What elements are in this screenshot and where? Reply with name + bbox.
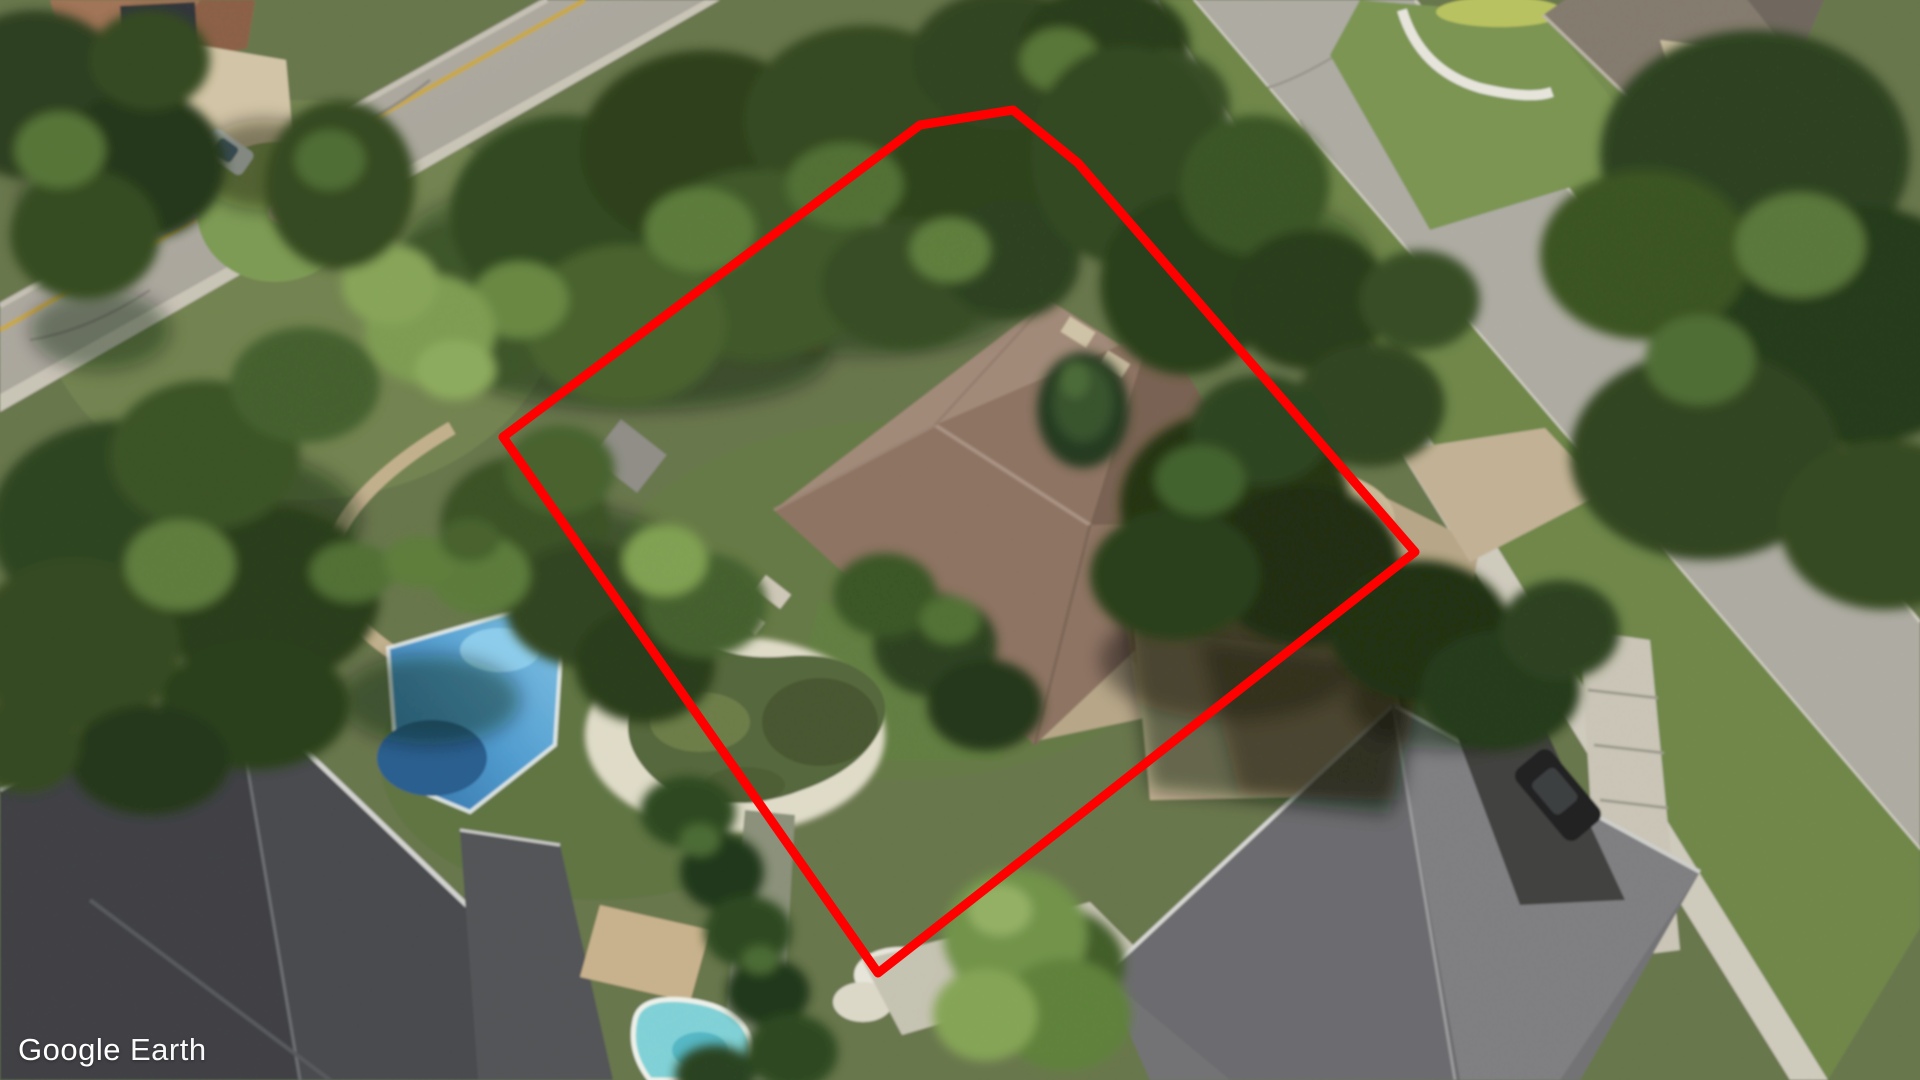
aerial-imagery	[0, 0, 1920, 1080]
google-earth-watermark: GoogleEarth	[18, 1032, 207, 1068]
watermark-product: Earth	[130, 1032, 207, 1067]
satellite-map-canvas[interactable]: GoogleEarth	[0, 0, 1920, 1080]
image-grain	[0, 0, 1920, 1080]
watermark-brand: Google	[18, 1032, 121, 1067]
